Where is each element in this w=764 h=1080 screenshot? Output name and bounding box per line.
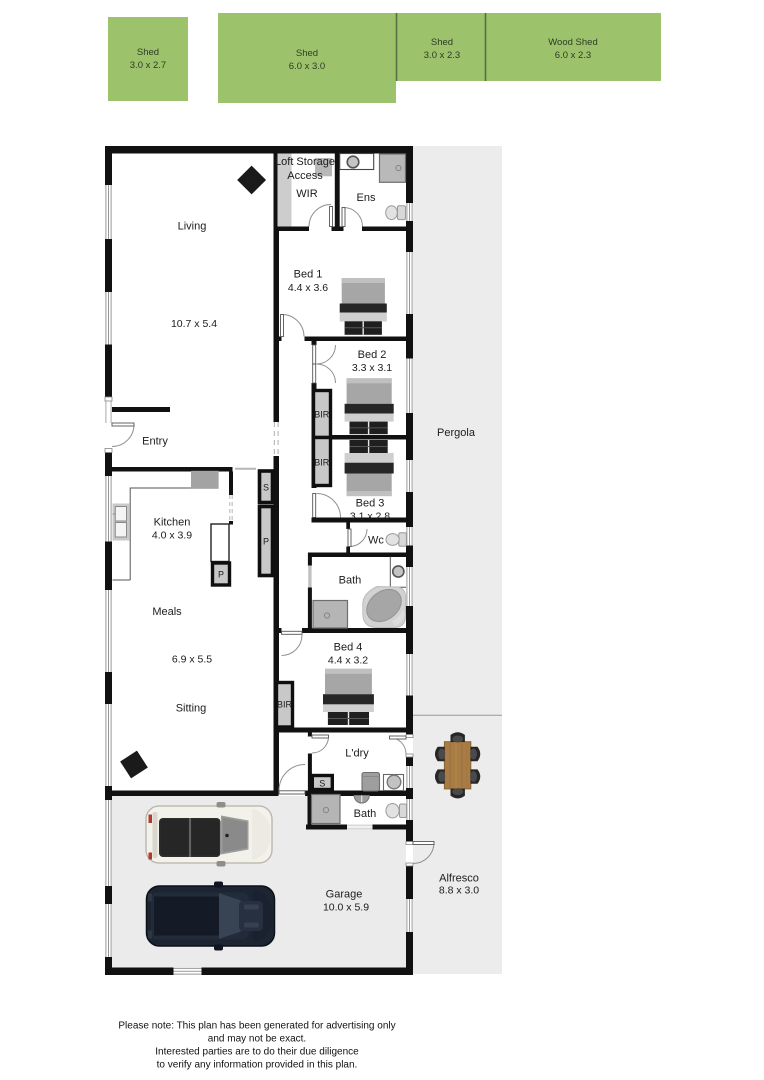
svg-text:BIR: BIR [314, 458, 330, 468]
svg-text:6.0 x 3.0: 6.0 x 3.0 [289, 61, 325, 72]
svg-text:3.0 x 2.3: 3.0 x 2.3 [424, 50, 460, 61]
svg-text:6.9 x 5.5: 6.9 x 5.5 [172, 654, 212, 666]
svg-text:Wood Shed: Wood Shed [548, 37, 597, 48]
svg-text:Bed 4: Bed 4 [334, 642, 363, 654]
svg-text:FP: FP [129, 761, 140, 770]
svg-text:Loft Storage: Loft Storage [275, 156, 335, 168]
svg-text:P: P [263, 537, 269, 547]
svg-text:10.0 x 5.9: 10.0 x 5.9 [323, 902, 369, 914]
svg-text:3.1 x 2.8: 3.1 x 2.8 [350, 511, 390, 523]
svg-text:Shed: Shed [137, 47, 159, 58]
svg-text:Sitting: Sitting [176, 703, 207, 715]
svg-text:Bed 1: Bed 1 [294, 269, 323, 281]
svg-text:Please note: This plan has bee: Please note: This plan has been generate… [118, 1021, 395, 1032]
svg-text:Bed 3: Bed 3 [356, 498, 385, 510]
svg-text:Bath: Bath [354, 808, 377, 820]
svg-text:Access: Access [287, 170, 323, 182]
svg-text:S: S [319, 779, 325, 789]
svg-text:Interested parties are to do t: Interested parties are to do their due d… [155, 1047, 359, 1058]
svg-text:10.7 x 5.4: 10.7 x 5.4 [171, 318, 217, 330]
svg-text:Shed: Shed [431, 37, 453, 48]
svg-text:Bath: Bath [339, 575, 362, 587]
svg-text:Garage: Garage [326, 889, 363, 901]
svg-text:Entry: Entry [142, 436, 168, 448]
svg-text:3.3 x 3.1: 3.3 x 3.1 [352, 362, 392, 374]
svg-text:FP: FP [246, 176, 257, 185]
svg-text:Shed: Shed [296, 48, 318, 59]
svg-text:4.0 x 3.9: 4.0 x 3.9 [152, 530, 192, 542]
svg-text:Meals: Meals [152, 606, 182, 618]
svg-text:S: S [263, 483, 269, 493]
svg-text:Living: Living [178, 221, 207, 233]
svg-text:BIR: BIR [277, 700, 293, 710]
svg-text:Bed 2: Bed 2 [358, 349, 387, 361]
svg-text:6.0 x 2.3: 6.0 x 2.3 [555, 50, 591, 61]
svg-text:4.4 x 3.2: 4.4 x 3.2 [328, 655, 368, 667]
svg-text:Wc: Wc [368, 535, 384, 547]
svg-text:and may not be exact.: and may not be exact. [208, 1034, 306, 1045]
svg-text:BIR: BIR [314, 410, 330, 420]
svg-text:L'dry: L'dry [345, 748, 369, 760]
svg-text:Alfresco: Alfresco [439, 873, 479, 885]
svg-text:Kitchen: Kitchen [154, 517, 191, 529]
svg-text:to verify any information prov: to verify any information provided in th… [157, 1060, 358, 1071]
svg-text:WIR: WIR [296, 188, 317, 200]
svg-text:3.0 x 2.7: 3.0 x 2.7 [130, 60, 166, 71]
svg-text:P: P [218, 570, 224, 580]
svg-text:8.8 x 3.0: 8.8 x 3.0 [439, 885, 479, 897]
svg-text:4.4 x 3.6: 4.4 x 3.6 [288, 282, 328, 294]
svg-text:Pergola: Pergola [437, 427, 476, 439]
svg-text:Ens: Ens [357, 192, 376, 204]
